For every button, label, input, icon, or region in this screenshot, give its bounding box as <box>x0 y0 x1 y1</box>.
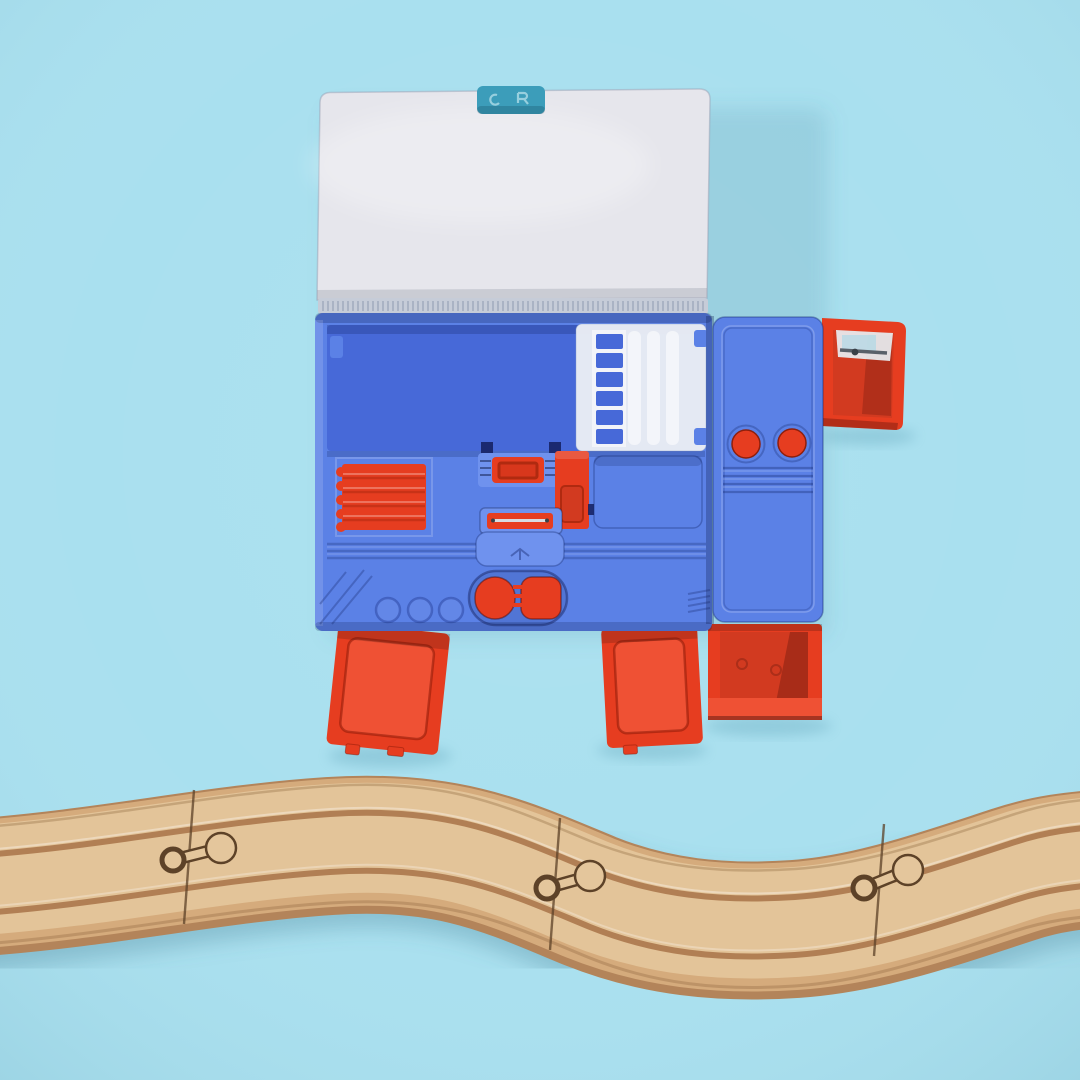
eraser-ridge-bump <box>336 495 346 505</box>
blade-pin <box>491 519 495 523</box>
scene-image <box>0 0 1080 1080</box>
case-body <box>315 313 712 631</box>
pen-tray-compartment <box>327 324 708 451</box>
insert-slot <box>596 429 623 444</box>
connector-keyhole <box>162 849 184 871</box>
insert-slot <box>596 391 623 406</box>
case-bottom-edge <box>315 622 712 631</box>
insert-clip <box>694 330 708 347</box>
insert-slot <box>596 334 623 349</box>
insert-channel <box>628 331 641 445</box>
blade-pin <box>545 519 549 523</box>
drawer-left-inner-panel <box>339 637 434 739</box>
embossed-circles <box>376 598 463 622</box>
pen-holder-insert <box>576 324 708 451</box>
embossed-circle <box>439 598 463 622</box>
connector-peg-head <box>893 855 923 885</box>
release-button-right <box>521 577 561 619</box>
push-button-inset <box>499 463 537 478</box>
case-top-rim <box>315 313 712 323</box>
sharpener-screw <box>852 349 859 356</box>
insert-slot <box>596 353 623 368</box>
slide-switch-top-highlight <box>555 451 589 459</box>
drawer-left-tab <box>387 746 404 757</box>
connector-keyhole <box>853 877 875 899</box>
embossed-circle <box>408 598 432 622</box>
blade-metal <box>492 519 548 522</box>
drawer-left-tab <box>345 744 360 755</box>
pen-tray-clip <box>330 336 343 358</box>
button-gap-bar <box>513 585 523 589</box>
slide-switch-knob <box>561 486 583 522</box>
insert-channel <box>647 331 660 445</box>
button-gap-bar <box>513 603 523 607</box>
round-red-button <box>778 429 806 457</box>
inner-compartment-floor <box>594 456 702 528</box>
drawer-shadow <box>820 427 916 445</box>
button-gap-bar <box>513 594 523 598</box>
connector-peg-head <box>575 861 605 891</box>
lid-hinge <box>318 298 708 314</box>
sharpener-drawer <box>822 318 906 430</box>
push-button-assembly <box>478 453 558 487</box>
drawer-middle-inner-panel <box>614 638 689 734</box>
handle-emboss <box>476 532 564 566</box>
lid-sheen <box>310 107 650 223</box>
drawer-right-bottom-edge <box>708 716 822 720</box>
case-left-rim-highlight <box>315 320 323 626</box>
drawer-middle-tab <box>623 745 637 755</box>
right-panel <box>713 317 823 622</box>
round-red-button <box>732 430 760 458</box>
embossed-circle <box>376 598 400 622</box>
eraser-ridge-bump <box>336 509 346 519</box>
eraser-block <box>336 458 432 536</box>
insert-slot <box>596 372 623 387</box>
right-panel-body <box>713 317 823 622</box>
inner-compartment <box>594 456 702 528</box>
insert-clip <box>694 428 708 445</box>
drawer-right <box>708 624 822 720</box>
release-button-left <box>475 577 515 619</box>
pencil-case-lid <box>310 86 710 300</box>
eraser-ridge-bump <box>336 522 346 532</box>
blade-slot <box>480 508 562 534</box>
inner-compartment-shadow <box>594 456 702 466</box>
drawer-left <box>325 622 450 763</box>
photo-stage <box>0 0 1080 1080</box>
latch-shade <box>477 106 545 114</box>
twin-buttons <box>469 571 567 625</box>
eraser-ridge-bump <box>336 467 346 477</box>
eraser-ridge-bump <box>336 481 346 491</box>
connector-peg-head <box>206 833 236 863</box>
drawer-middle <box>601 623 704 755</box>
insert-slot <box>596 410 623 425</box>
drawer-right-top-shade <box>708 624 822 631</box>
lid-latch <box>477 86 545 114</box>
insert-channel <box>666 331 679 445</box>
connector-keyhole <box>536 877 558 899</box>
